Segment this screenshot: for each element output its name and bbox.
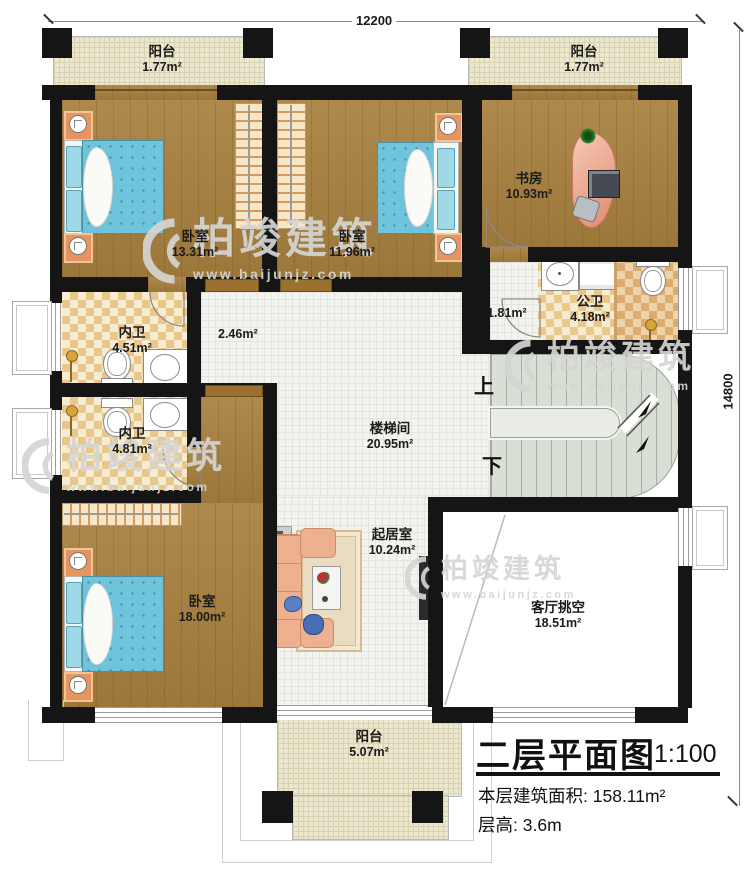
window bbox=[678, 268, 692, 330]
door-opening-patch bbox=[148, 277, 186, 292]
floor-height-label: 层高: bbox=[478, 815, 518, 835]
lamp bbox=[69, 115, 87, 133]
threshold-line bbox=[95, 89, 217, 91]
wall bbox=[50, 85, 62, 722]
person-figure bbox=[303, 614, 324, 635]
stairs-down-label: 下 bbox=[482, 450, 502, 479]
lamp bbox=[69, 237, 87, 255]
room-label-bedroom1: 卧室 13.31m² bbox=[155, 229, 235, 260]
pillar bbox=[658, 28, 688, 58]
balcony-door-opening bbox=[512, 85, 638, 100]
floor-area-label: 本层建筑面积: bbox=[478, 786, 588, 806]
monitor bbox=[588, 170, 620, 198]
wall bbox=[263, 397, 277, 707]
plant bbox=[580, 128, 596, 144]
bed-pillow bbox=[66, 190, 82, 232]
table-item bbox=[322, 596, 328, 602]
wall bbox=[678, 85, 692, 708]
room-label-bedroom3: 卧室 18.00m² bbox=[162, 594, 242, 625]
wall bbox=[528, 247, 678, 262]
room-label-inner-bath1: 内卫 4.51m² bbox=[100, 325, 164, 356]
pillar bbox=[412, 791, 443, 823]
wall bbox=[42, 707, 95, 723]
lamp bbox=[69, 676, 87, 694]
room-label-stairwell: 楼梯间 20.95m² bbox=[347, 421, 433, 452]
wall bbox=[50, 490, 201, 503]
towel-knob bbox=[66, 405, 78, 417]
floor-height-value: 3.6m bbox=[523, 815, 562, 835]
room-label-living: 起居室 10.24m² bbox=[350, 527, 434, 558]
room-label-study: 书房 10.93m² bbox=[488, 171, 570, 202]
room-label-void: 客厅挑空 18.51m² bbox=[514, 600, 602, 631]
floor-area-value: 158.11m² bbox=[593, 786, 666, 806]
bed-pillow bbox=[437, 190, 455, 230]
floor-height-line: 层高: 3.6m bbox=[478, 812, 562, 837]
wall bbox=[428, 497, 678, 512]
room-label-inner-bath2: 内卫 4.81m² bbox=[100, 426, 164, 457]
wall bbox=[462, 340, 678, 354]
sliding-door bbox=[277, 705, 432, 720]
door-opening-patch bbox=[187, 447, 201, 487]
vestibule-floor bbox=[490, 255, 538, 340]
wall bbox=[187, 397, 201, 447]
dimension-right-value: 14800 bbox=[721, 369, 736, 413]
wall bbox=[217, 85, 512, 100]
floor-drain bbox=[645, 319, 657, 331]
dimension-top-value: 12200 bbox=[352, 13, 396, 28]
plan-title: 二层平面图 bbox=[476, 728, 656, 777]
towel-bar bbox=[70, 414, 72, 436]
dimension-tick bbox=[727, 796, 738, 807]
bay-window bbox=[12, 301, 52, 375]
sink bbox=[150, 402, 180, 428]
dimension-tick bbox=[43, 14, 54, 25]
lamp bbox=[69, 552, 87, 570]
bed-pillow bbox=[437, 148, 455, 188]
floor-plan: 柏竣建筑 www.baijunjz.com 柏竣建筑 www.baijunjz.… bbox=[0, 0, 750, 877]
wardrobe-rail bbox=[248, 105, 250, 225]
threshold-line bbox=[512, 89, 638, 91]
area-label-corridor: 2.46m² bbox=[218, 327, 258, 341]
wall bbox=[187, 292, 201, 383]
window bbox=[493, 707, 635, 723]
dimension-line-right bbox=[739, 30, 740, 806]
wall bbox=[222, 707, 277, 723]
window bbox=[95, 707, 222, 723]
pillar bbox=[460, 28, 490, 58]
window bbox=[678, 508, 692, 566]
bed-pillow bbox=[66, 146, 82, 188]
plan-scale: 1:100 bbox=[654, 740, 717, 769]
toilet bbox=[640, 266, 666, 296]
wall bbox=[50, 383, 187, 397]
floor-area-line: 本层建筑面积: 158.11m² bbox=[478, 783, 665, 808]
wall bbox=[432, 707, 493, 723]
armchair bbox=[300, 528, 336, 558]
lamp bbox=[439, 117, 457, 135]
balcony-door-opening bbox=[95, 85, 217, 100]
wall bbox=[262, 100, 277, 292]
wall bbox=[462, 247, 490, 342]
bed-pillow bbox=[66, 582, 82, 624]
person-figure bbox=[284, 596, 302, 612]
lamp bbox=[439, 237, 457, 255]
room-label-balcony-bottom: 阳台 5.07m² bbox=[326, 729, 412, 760]
door-opening-patch bbox=[486, 247, 528, 262]
pillar bbox=[243, 28, 273, 58]
sink bbox=[150, 354, 180, 381]
wall bbox=[50, 277, 148, 292]
bedroom3-entry-floor bbox=[201, 397, 263, 503]
wardrobe-rail bbox=[290, 105, 292, 225]
room-label-balcony-top-left: 阳台 1.77m² bbox=[118, 44, 206, 75]
bed-pillow bbox=[66, 626, 82, 668]
wall bbox=[462, 100, 482, 247]
bay-window bbox=[12, 408, 52, 479]
room-label-public-bath: 公卫 4.18m² bbox=[558, 294, 622, 325]
pillar bbox=[42, 28, 72, 58]
title-rule bbox=[476, 772, 720, 776]
tv bbox=[419, 556, 428, 620]
area-label-vestibule: 1.81m² bbox=[487, 306, 527, 320]
room-label-balcony-top-right: 阳台 1.77m² bbox=[540, 44, 628, 75]
door-leaf bbox=[280, 279, 332, 292]
wall bbox=[635, 707, 688, 723]
sink-drain bbox=[558, 272, 561, 275]
door-leaf bbox=[205, 385, 263, 397]
bay-window bbox=[692, 506, 728, 570]
pillar bbox=[262, 791, 293, 823]
wardrobe-rail bbox=[64, 513, 178, 515]
room-label-bedroom2: 卧室 11.96m² bbox=[312, 229, 392, 260]
dimension-tick bbox=[695, 14, 706, 25]
flower-vase bbox=[317, 572, 331, 584]
stairs-landing bbox=[490, 408, 620, 438]
door-leaf bbox=[205, 279, 259, 292]
bay-window bbox=[692, 266, 728, 334]
stairs-up-label: 上 bbox=[474, 370, 494, 399]
towel-knob bbox=[66, 350, 78, 362]
